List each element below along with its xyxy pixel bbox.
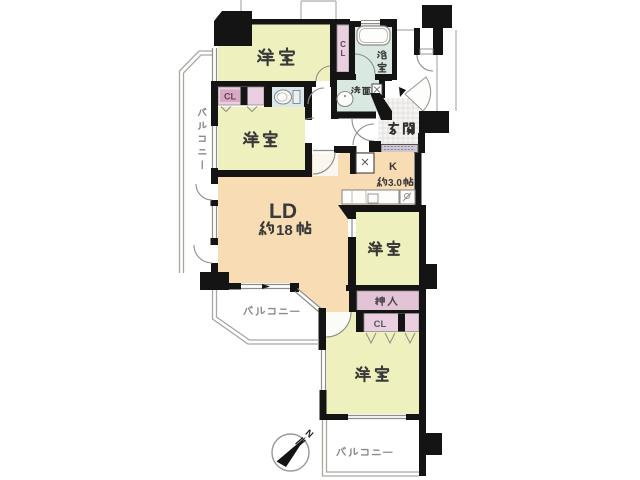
svg-text:L: L xyxy=(341,49,346,58)
svg-text:LD: LD xyxy=(269,200,297,223)
svg-text:3.0: 3.0 xyxy=(388,178,402,189)
svg-text:K: K xyxy=(389,161,397,173)
svg-text:18: 18 xyxy=(276,222,293,239)
svg-text:CL: CL xyxy=(224,92,236,102)
svg-text:CL: CL xyxy=(374,319,387,330)
svg-text:C: C xyxy=(340,40,346,49)
